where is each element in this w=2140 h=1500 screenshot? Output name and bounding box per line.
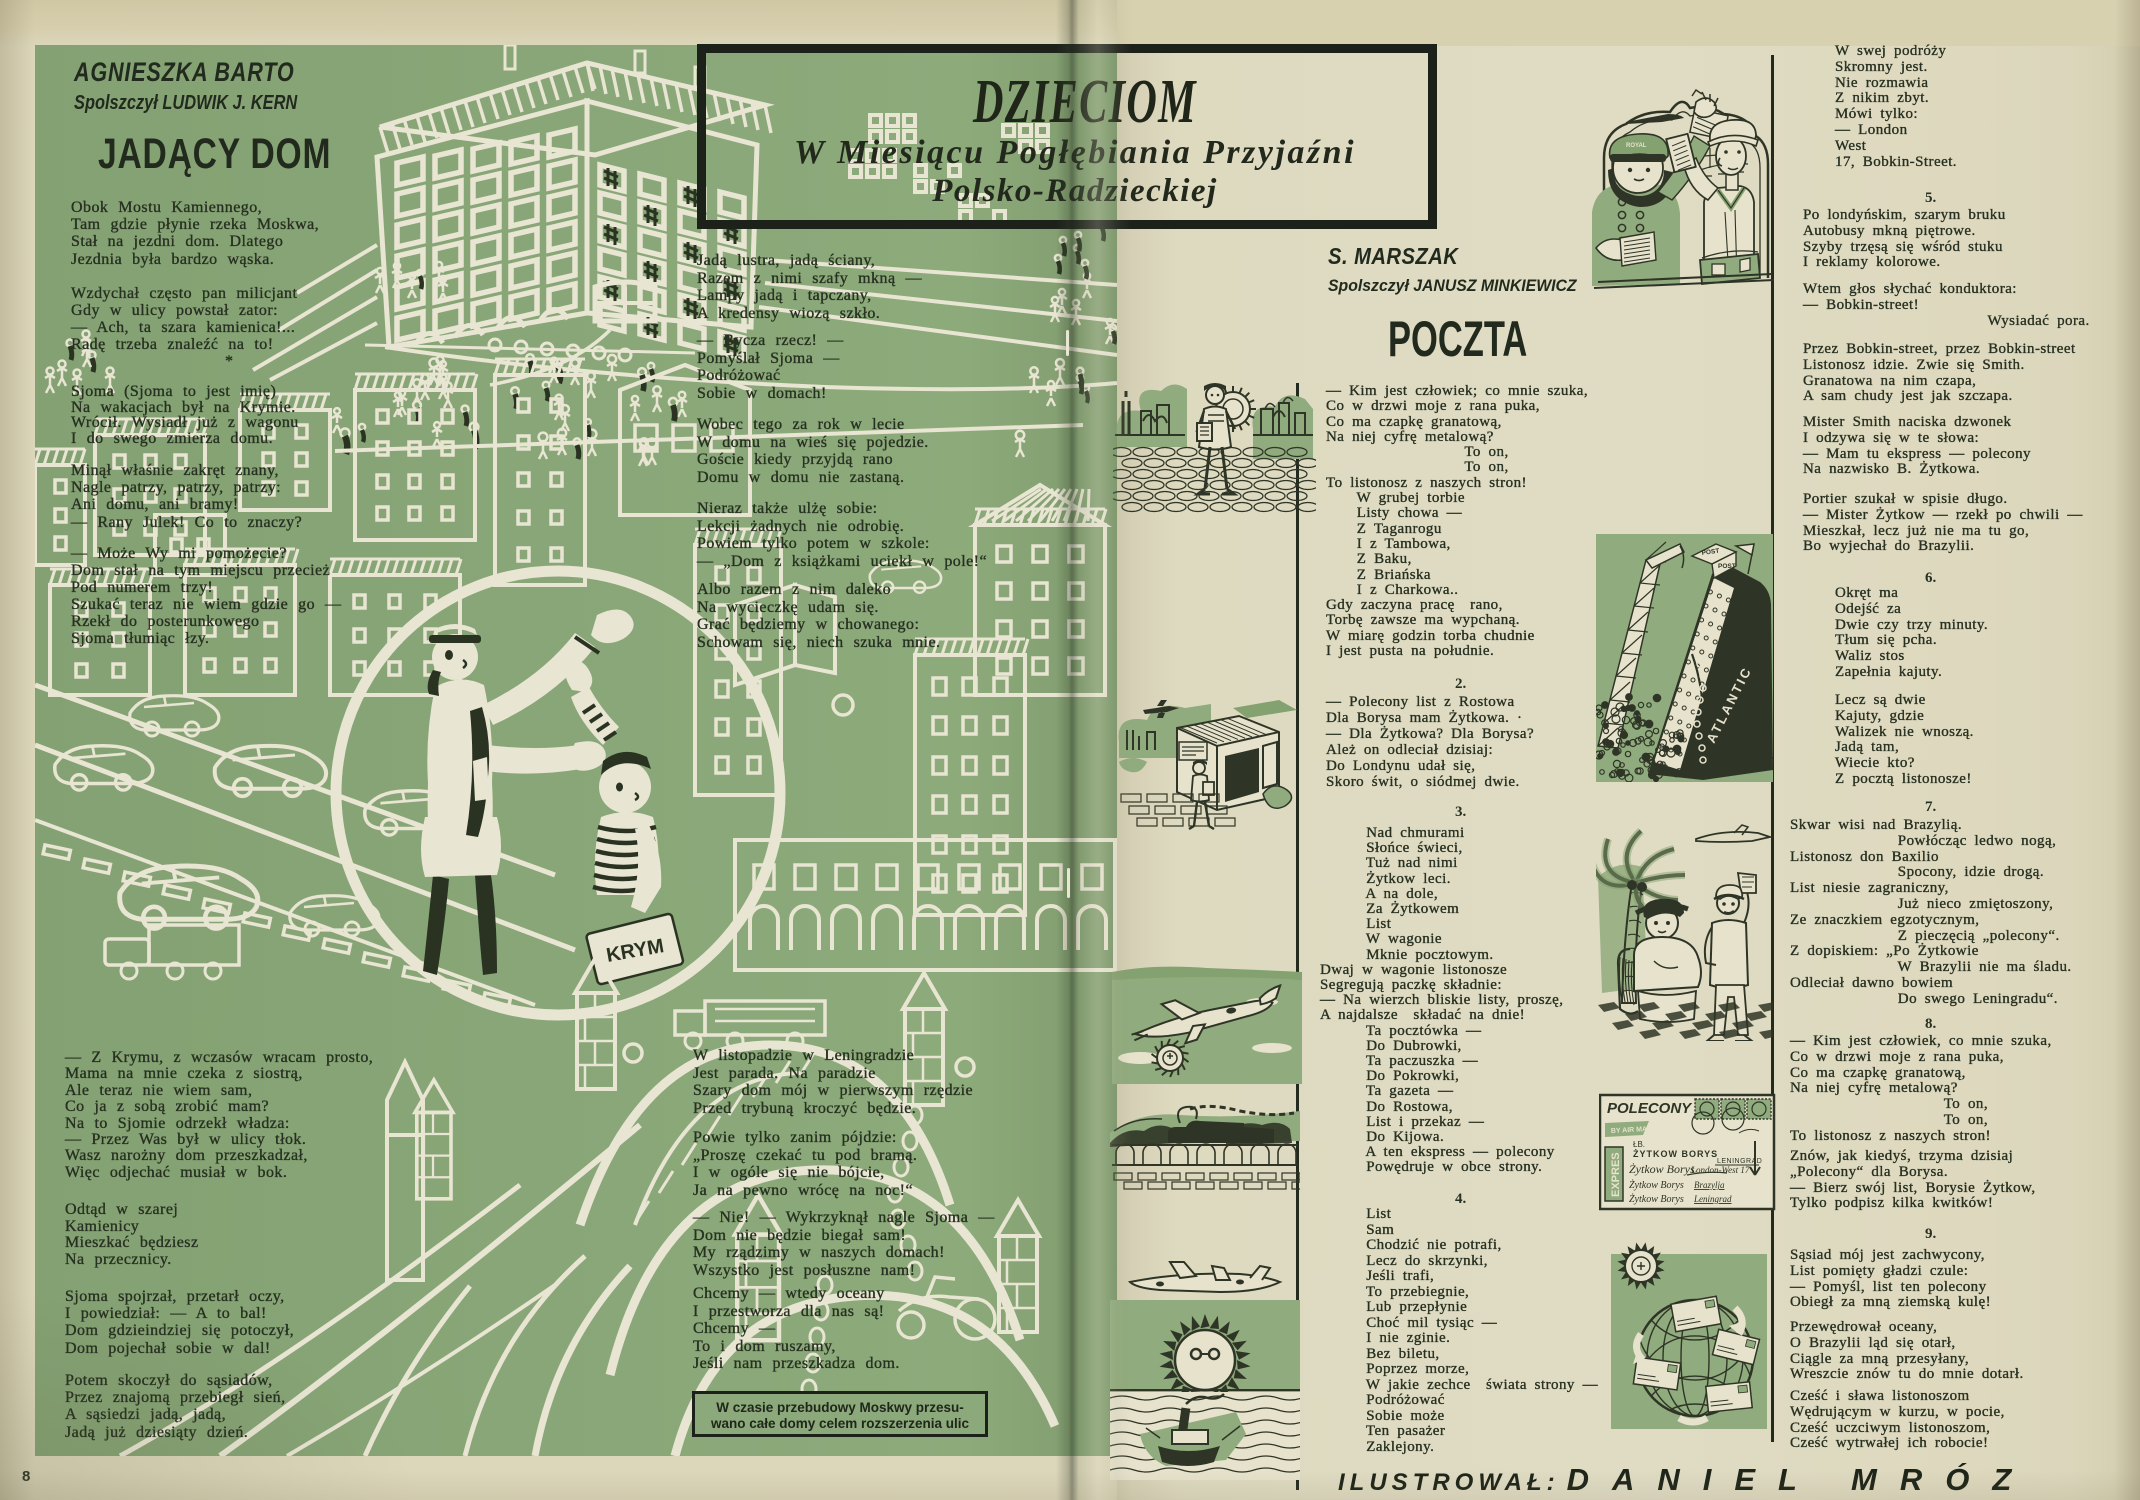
svg-text:Żytkow Borys: Żytkow Borys [1629,1193,1684,1205]
svg-text:Żytkow Borys: Żytkow Borys [1629,1179,1684,1191]
svg-text:ŻYTKOW BORYS: ŻYTKOW BORYS [1633,1149,1718,1159]
svg-text:London-West 17: London-West 17 [1690,1165,1750,1175]
svg-text:ROYAL: ROYAL [1626,143,1647,149]
svg-text:Brazylja: Brazylja [1694,1180,1725,1190]
svg-text:Żytkow Borys: Żytkow Borys [1629,1162,1695,1176]
svg-text:POST: POST [1718,563,1736,570]
svg-text:EXPRES: EXPRES [1610,1152,1622,1197]
svg-text:ŁB.: ŁB. [1633,1140,1645,1149]
svg-text:POLECONY: POLECONY [1607,1100,1693,1117]
svg-text:Leningrad: Leningrad [1693,1194,1732,1204]
